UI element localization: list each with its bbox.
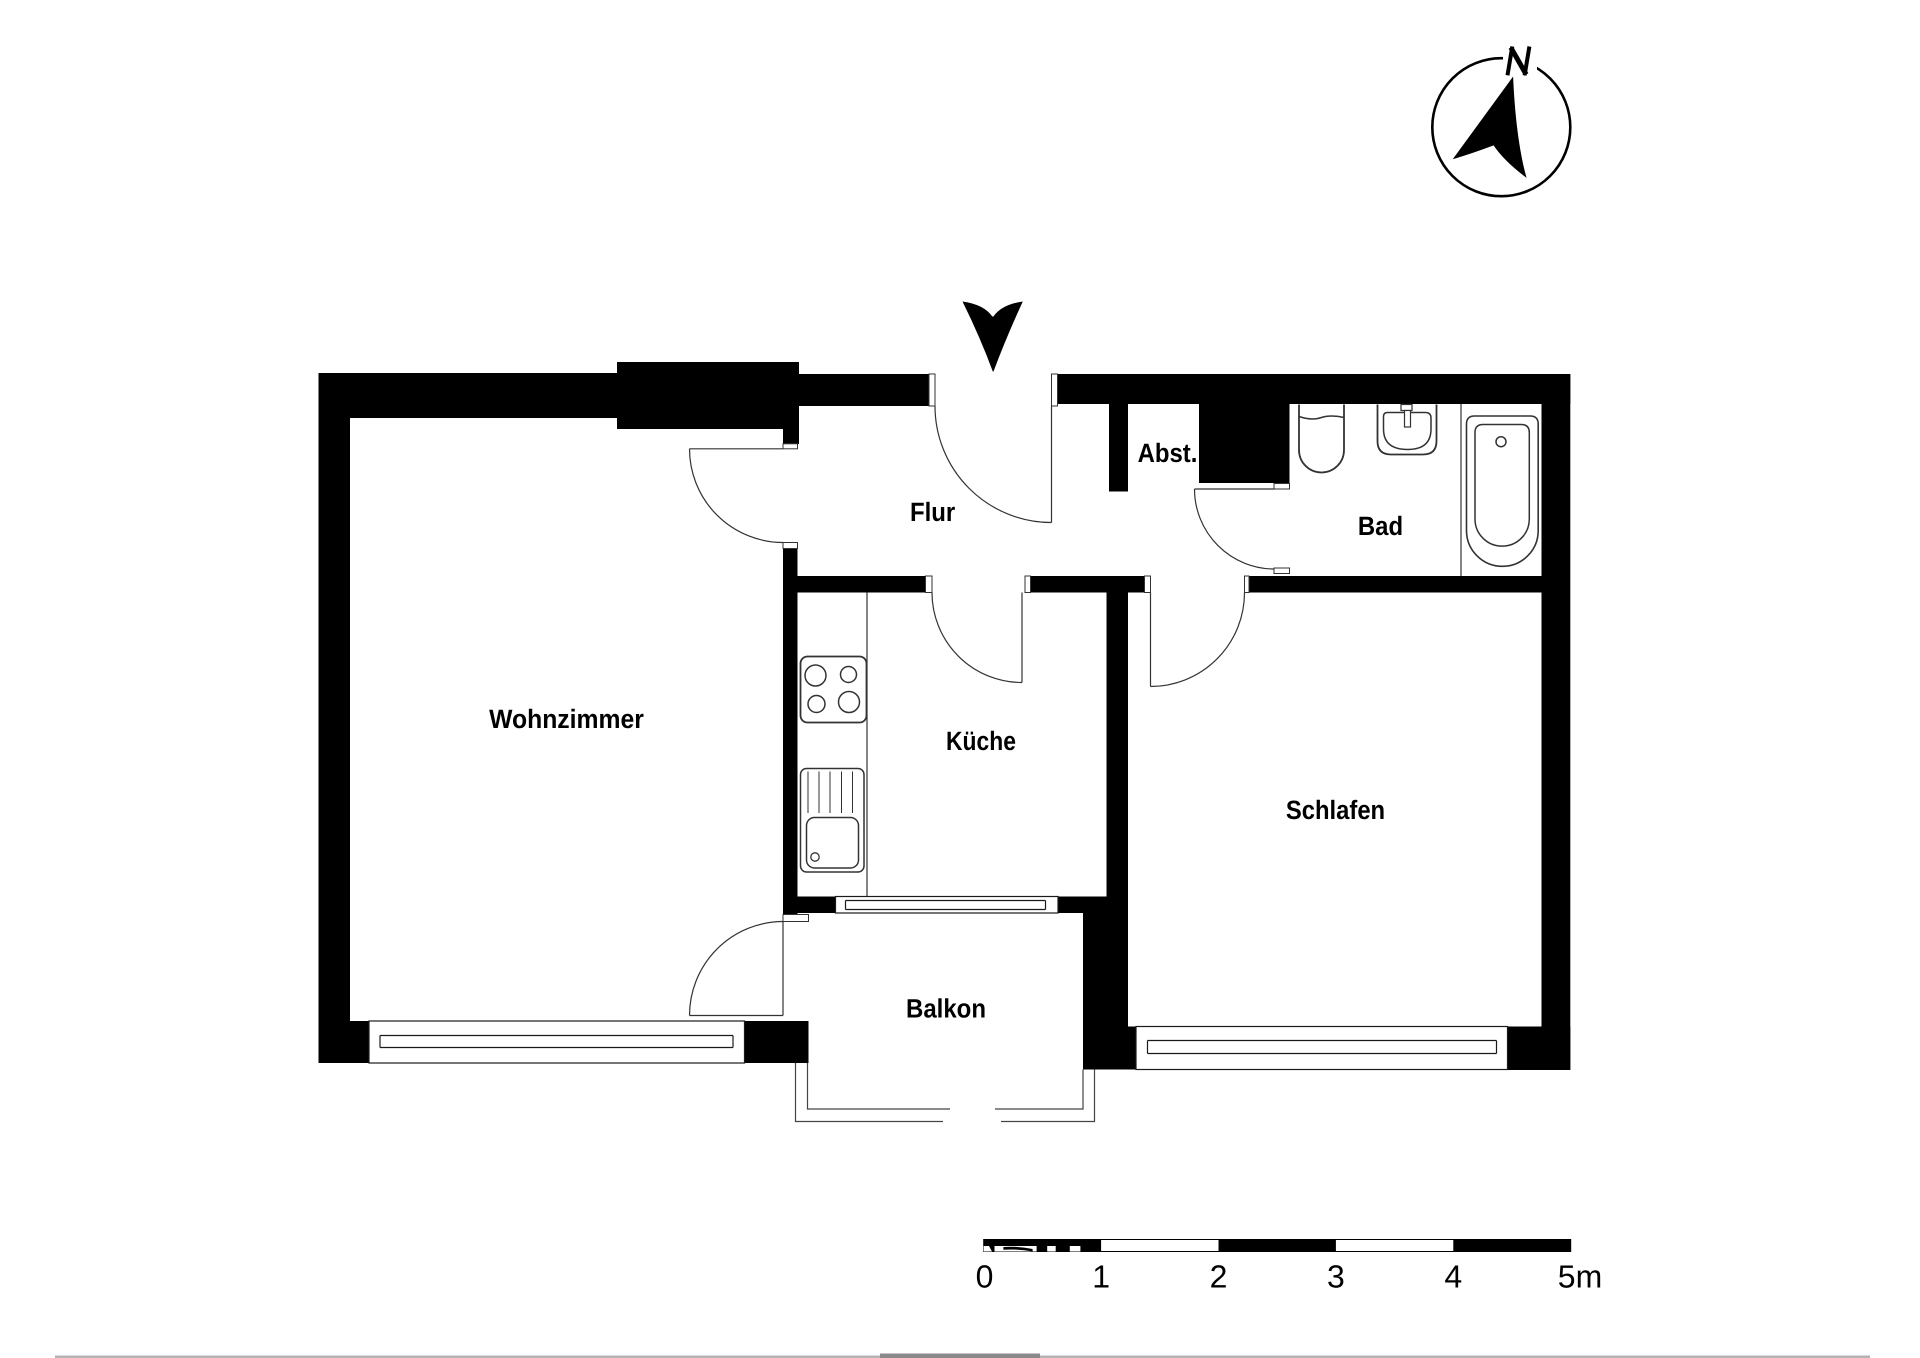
svg-text:2: 2 [1210,1259,1228,1295]
svg-text:3: 3 [1327,1259,1345,1295]
svg-text:Wohnzimmer: Wohnzimmer [489,704,644,734]
svg-text:4: 4 [1444,1259,1462,1295]
svg-text:Schlafen: Schlafen [1286,795,1385,825]
svg-text:0: 0 [976,1259,994,1295]
svg-text:Flur: Flur [910,497,955,527]
svg-text:Balkon: Balkon [906,994,986,1024]
svg-text:Bad: Bad [1358,511,1403,541]
svg-text:Abst.: Abst. [1138,438,1198,468]
svg-text:1: 1 [1092,1259,1110,1295]
svg-text:Küche: Küche [946,726,1016,756]
svg-text:5m: 5m [1558,1259,1602,1295]
